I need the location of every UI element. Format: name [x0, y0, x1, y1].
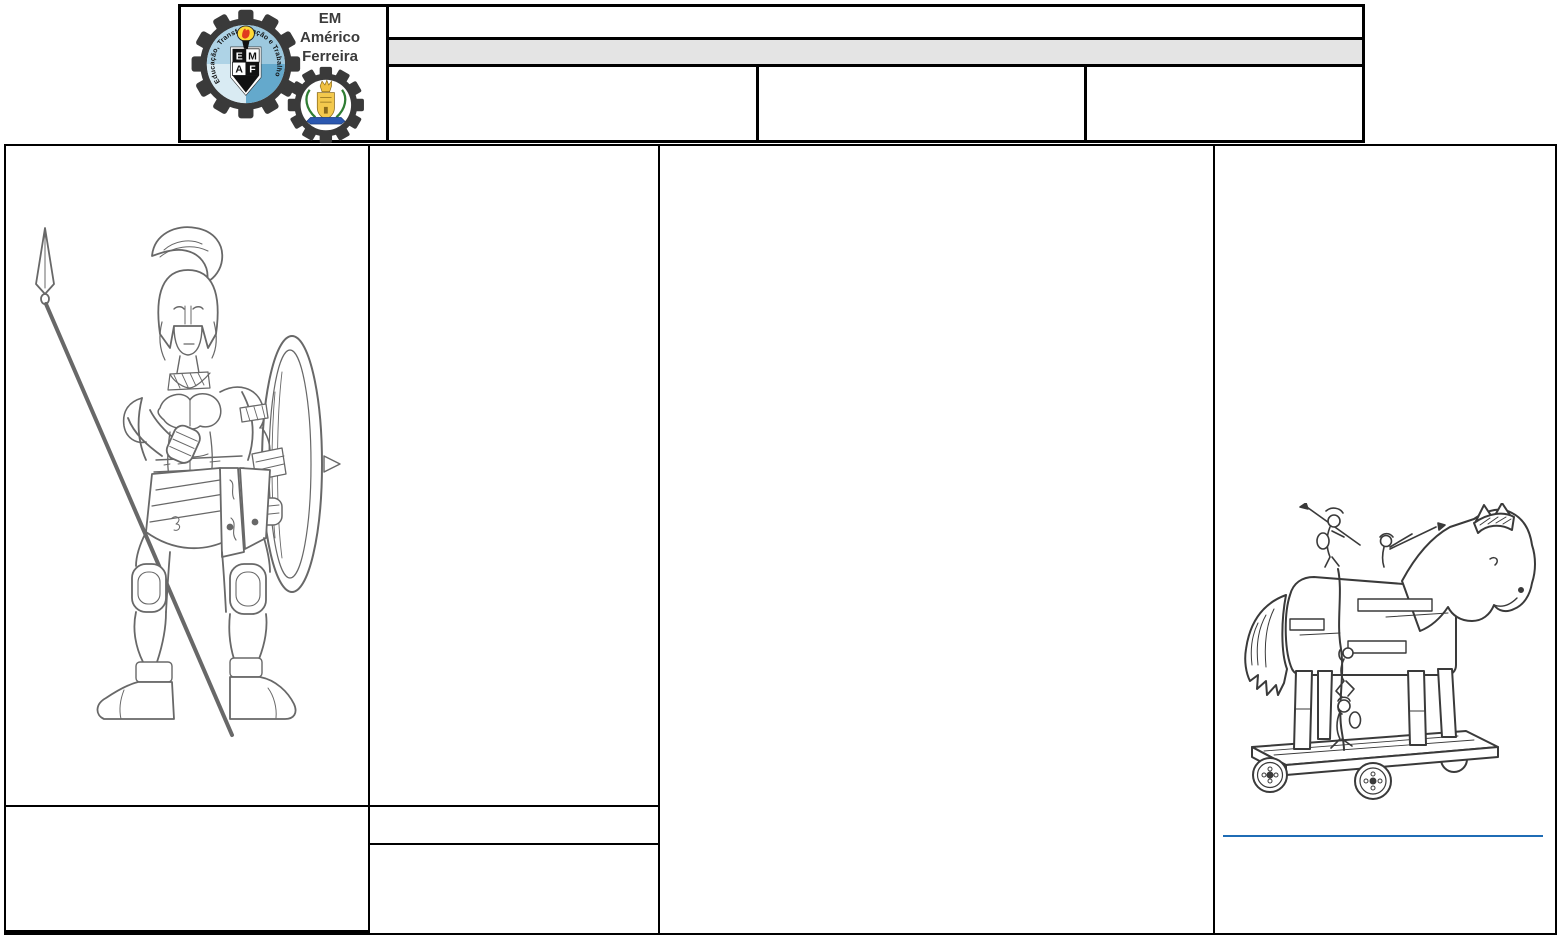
- column-divider-2: [658, 146, 660, 933]
- cell-col2-bottom[interactable]: [370, 845, 658, 933]
- cell-left-bottom[interactable]: [6, 807, 368, 933]
- cell-col2-middle[interactable]: [370, 807, 658, 843]
- column-divider-1: [368, 146, 370, 933]
- emblem-letter-a: A: [235, 65, 243, 76]
- emblem-letter-m: M: [248, 51, 257, 62]
- warrior-left-arm: [124, 398, 203, 466]
- warrior-illustration: [24, 222, 364, 742]
- header-cell-1[interactable]: [389, 67, 759, 140]
- school-logo-icon: Educação, Transformação e Trabalho E: [183, 9, 383, 161]
- link-underline[interactable]: [1223, 835, 1543, 837]
- warrior-helmet-icon: [152, 227, 222, 360]
- horse-head-neck: [1402, 503, 1535, 631]
- header-fields: [389, 7, 1362, 140]
- bottom-border-left-segment: [6, 930, 370, 933]
- header-field-row3: [389, 67, 1362, 140]
- header-cell-2[interactable]: [759, 67, 1087, 140]
- warrior-skirt: [146, 468, 270, 557]
- row-divider-col2: [368, 843, 660, 845]
- header-cell-3[interactable]: [1087, 67, 1362, 140]
- school-header-table: Educação, Transformação e Trabalho E: [178, 4, 1365, 143]
- worksheet-table: [4, 144, 1557, 935]
- cell-col2-top[interactable]: [370, 146, 658, 805]
- column-divider-3: [1213, 146, 1215, 933]
- trojan-horse-illustration: [1240, 503, 1550, 803]
- emblem-letter-e: E: [236, 51, 243, 62]
- horse-tail: [1245, 595, 1287, 695]
- cell-col3[interactable]: [660, 146, 1213, 933]
- warrior-legs: [97, 532, 295, 719]
- emblem-letter-f: F: [249, 65, 256, 76]
- small-gear-icon: [288, 67, 364, 143]
- header-field-row1[interactable]: [389, 7, 1362, 40]
- big-gear-icon: Educação, Transformação e Trabalho E: [192, 10, 301, 119]
- logo-cell: Educação, Transformação e Trabalho E: [181, 7, 389, 140]
- row-divider-left: [6, 805, 660, 807]
- header-banner-row[interactable]: [389, 40, 1362, 67]
- document-page: Educação, Transformação e Trabalho E: [0, 0, 1560, 937]
